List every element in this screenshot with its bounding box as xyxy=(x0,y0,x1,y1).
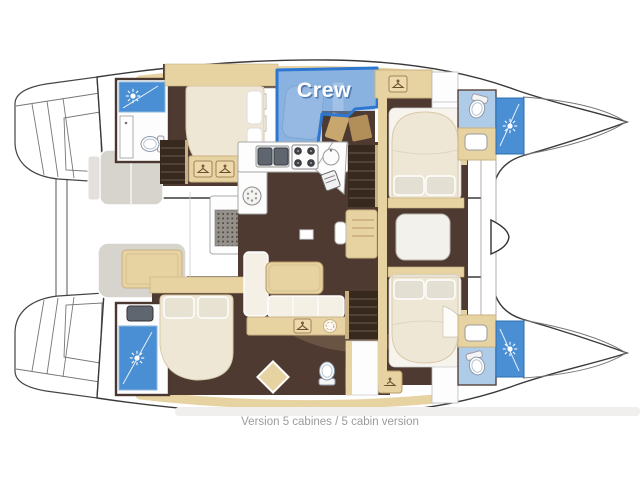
mid-seat xyxy=(396,214,450,260)
stairs-starboard xyxy=(345,291,378,339)
plan-caption: Version 5 cabines / 5 cabin version xyxy=(241,416,419,428)
stern-platform xyxy=(56,166,67,310)
pillow xyxy=(426,176,455,195)
sofa-seat xyxy=(268,296,344,317)
stairs-fwd-port xyxy=(348,145,378,207)
sofa-backrest xyxy=(244,252,268,316)
entry-grid-mat xyxy=(215,210,238,246)
fwd-bathroom-port xyxy=(458,90,524,160)
washbasin-icon xyxy=(465,134,487,150)
fwd-bathroom-starboard xyxy=(458,315,524,385)
pillow xyxy=(426,280,455,299)
washbasin-icon xyxy=(127,306,153,321)
pillow xyxy=(394,280,424,299)
stove-icon xyxy=(292,145,318,169)
transom-steps-bottom xyxy=(15,293,104,398)
nav-desk xyxy=(346,210,377,258)
crew-cabin: Crew Crew xyxy=(277,68,377,143)
floor-hatch-icon xyxy=(243,187,261,205)
washbasin-icon xyxy=(465,325,487,341)
shower-head-icon xyxy=(126,89,140,103)
stairs-aft-port xyxy=(160,140,188,184)
round-sink-icon xyxy=(323,149,339,165)
double-sink-icon xyxy=(256,146,289,167)
pillow xyxy=(198,297,228,318)
pillow xyxy=(394,176,424,195)
toilet-icon xyxy=(319,362,335,385)
shower-head-icon xyxy=(503,119,517,133)
floor-plan-svg: Crew Crew xyxy=(0,0,640,480)
pillow xyxy=(164,297,194,318)
vent-icon xyxy=(324,320,337,333)
crew-label: Crew xyxy=(297,78,352,102)
yacht-floor-plan-image: Crew Crew xyxy=(0,0,640,480)
pillow xyxy=(247,91,262,124)
shower-head-icon xyxy=(130,351,144,365)
coffee-table xyxy=(266,262,323,294)
floor-hatch xyxy=(300,230,313,239)
nav-stool xyxy=(335,222,346,244)
caption-shadow-band xyxy=(175,407,640,416)
shower-head-icon xyxy=(503,342,517,356)
